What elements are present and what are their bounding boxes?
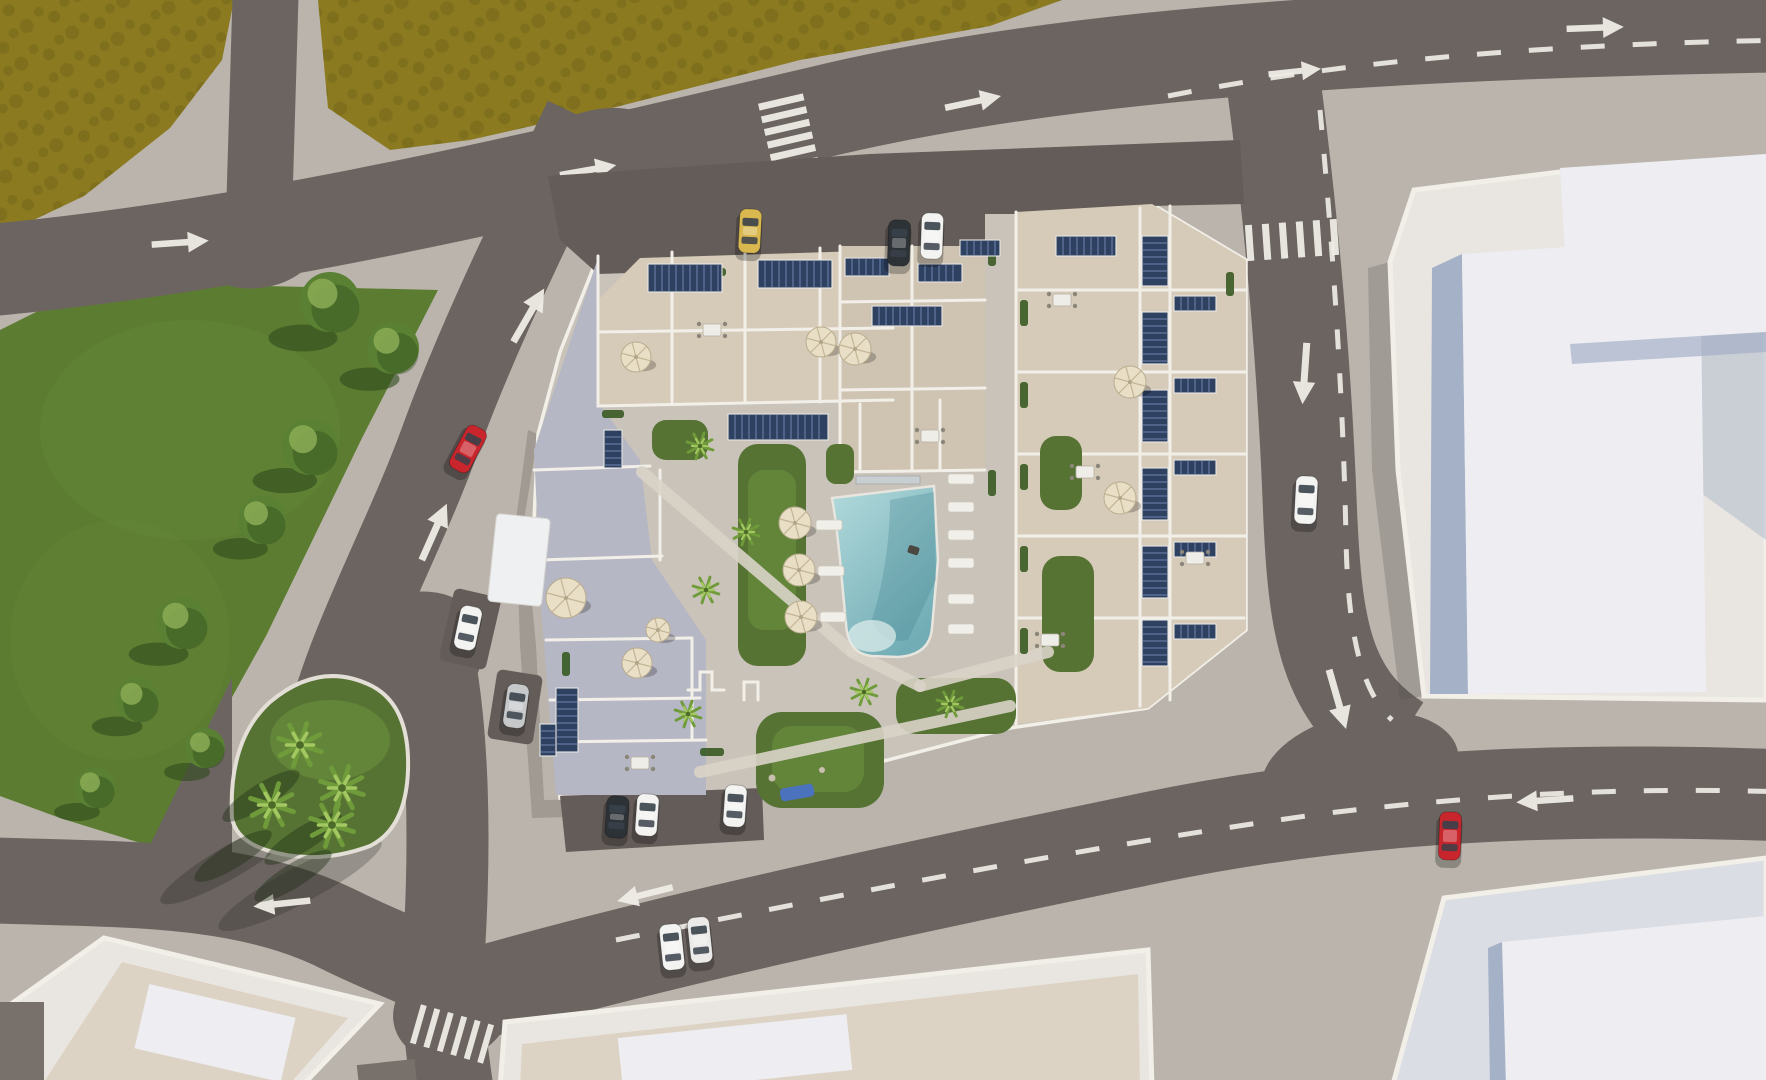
white-car-parked-south-1 [631,793,660,845]
sun-lounger [818,566,844,576]
palm-crown [948,702,953,707]
parasol-pole [853,347,857,351]
palm-crown [296,741,304,749]
solar-panel-array [1142,468,1168,520]
parasol-pole [656,628,660,632]
table-chair [723,334,727,338]
car-roof [892,238,906,248]
car-roof [693,934,708,945]
tree-canopy-light [190,732,210,752]
solar-panel-array [1174,378,1216,393]
pool-top-bar [856,476,920,484]
building-east [1368,154,1766,700]
aerial-render-canvas [0,0,1766,1080]
sun-lounger [948,474,974,484]
hedge-planter [700,748,724,756]
car-windshield [609,804,626,813]
table-chair [1047,292,1051,296]
table-chair [697,322,701,326]
table-chair [1073,304,1077,308]
palm-crown [744,530,749,535]
parasol-pole [793,521,797,525]
table-chair [915,428,919,432]
car-rear-window [638,819,654,827]
swimming-pool [832,476,938,657]
sun-lounger [816,520,842,530]
solar-panel-array [845,258,889,276]
yellow-car-parked-north [734,208,763,261]
tree-canopy-light [308,279,338,309]
palm-crown [338,784,346,792]
car-rear-window [726,810,742,818]
table-chair [1206,562,1210,566]
car-windshield [1442,821,1458,830]
table-chair [1061,632,1065,636]
table-chair [651,767,655,771]
table-chair [1035,644,1039,648]
table-chair [723,322,727,326]
car-windshield [727,793,744,802]
solar-panel [604,430,622,468]
white-car-east-road [1290,475,1319,532]
table-chair [1070,464,1074,468]
palm-crown [862,690,867,695]
palm-crown [704,588,709,593]
table-chair [625,767,629,771]
solar-panel-array [1174,460,1216,475]
sun-lounger [948,624,974,634]
tree-canopy-light [244,501,268,525]
table-chair [1070,476,1074,480]
hedge-planter [1226,272,1234,296]
parasol-pole [1118,496,1122,500]
table-top [1053,294,1071,306]
parasol-pole [564,596,568,600]
pool-beach-entry [848,620,896,652]
table-chair [915,440,919,444]
table-chair [941,428,945,432]
table-top [631,757,649,769]
parasol-pole [1128,380,1132,384]
car-rear-window [1297,508,1313,516]
car-roof [1299,494,1314,507]
parasol-pole [634,355,638,359]
car-roof [925,231,939,241]
table-chair [1206,550,1210,554]
car-roof [1443,830,1457,842]
table-chair [1180,562,1184,566]
solar-panel [1056,236,1116,256]
table-chair [1047,304,1051,308]
solar-panel-array [556,688,578,752]
dark-car-parked-south [601,795,630,847]
palm-crown [698,444,703,449]
solar-panel-array [1142,546,1168,598]
car-windshield [691,925,708,935]
garage-canopy-west [488,513,551,606]
table-chair [1096,476,1100,480]
road-topleft-stub [258,0,266,250]
car-rear-window [891,250,907,258]
building-east-raised-north-block [1560,154,1766,344]
solar-panel [1142,390,1168,442]
hedge-planter [562,652,570,676]
tree-canopy-light [163,603,189,629]
tree-canopy-light [121,683,143,705]
hedge-planter [1020,628,1028,654]
car-roof [728,803,742,810]
table-chair [1073,292,1077,296]
sun-lounger [948,594,974,604]
solar-panel-array [728,414,828,440]
solar-panel-array [1174,624,1216,639]
solar-panel-array [758,260,832,288]
solar-panel-array [648,264,722,292]
solar-panel [556,688,578,752]
table-chair [1061,644,1065,648]
solar-panel-array [1142,390,1168,442]
white-car-parked-south-2 [719,784,748,836]
table-chair [697,334,701,338]
parasol-pole [799,615,803,619]
table-top [1186,552,1204,564]
table-top [1041,634,1059,646]
sun-lounger [948,558,974,568]
solar-panel-array [960,240,1000,256]
sun-lounger [948,502,974,512]
palm-crown [268,801,276,809]
solar-panel [540,724,556,756]
solar-panel-array [1142,312,1168,364]
car-roof [640,812,654,819]
table-chair [1035,632,1039,636]
dark-car-parked-north [884,220,912,275]
sun-lounger [948,530,974,540]
table-chair [625,755,629,759]
car-rear-window [924,243,940,251]
table-chair [941,440,945,444]
hedge-planter [1020,546,1028,572]
car-windshield [663,932,680,942]
tree-canopy-light [374,328,400,354]
car-windshield [924,222,940,231]
sun-lounger [820,612,846,622]
red-car-bottom-road [1435,812,1463,869]
hedge-planter [988,470,996,496]
table-chair [1180,550,1184,554]
solar-panel [728,414,828,440]
aerial-render-stage [0,0,1766,1080]
hedge-planter [1020,300,1028,326]
solar-panel-array [1142,620,1168,666]
solar-panel-array [1056,236,1116,256]
table-top [921,430,939,442]
solar-panel [960,240,1000,256]
solar-panel-array [604,430,622,468]
solar-panel-array [872,306,942,326]
solar-panel [1142,468,1168,520]
table-top [703,324,721,336]
palm-crown [686,712,691,717]
car-roof [610,814,624,821]
car-roof [665,941,680,952]
solar-panel-array [540,724,556,756]
table-chair [1096,464,1100,468]
table-chair [651,755,655,759]
solar-panel [1142,546,1168,598]
white-car-parked-north [917,213,945,268]
solar-panel-array [1142,236,1168,286]
car-rear-window [608,821,624,829]
building-bottom-right-raised [1502,916,1766,1080]
parasol-pole [797,568,801,572]
hedge-planter [1020,464,1028,490]
car-rear-window [1441,844,1457,852]
hedge-planter [602,410,624,418]
car-windshield [1298,485,1314,494]
car-rear-window [741,237,757,245]
solar-panel [1142,312,1168,364]
car-windshield [891,229,907,238]
parasol-pole [635,661,639,665]
tree-canopy-light [289,425,317,453]
building-east-raised-west-face [1430,254,1468,694]
car-windshield [742,218,758,227]
palm-crown [328,821,336,829]
car-roof [743,227,757,236]
parasol-pole [819,340,823,344]
car-windshield [639,802,656,811]
building-edge-left-dark [0,1002,44,1080]
hedge-planter [1020,382,1028,408]
table-top [1076,466,1094,478]
tree-canopy-light [80,772,100,792]
solar-panel-array [1174,296,1216,311]
